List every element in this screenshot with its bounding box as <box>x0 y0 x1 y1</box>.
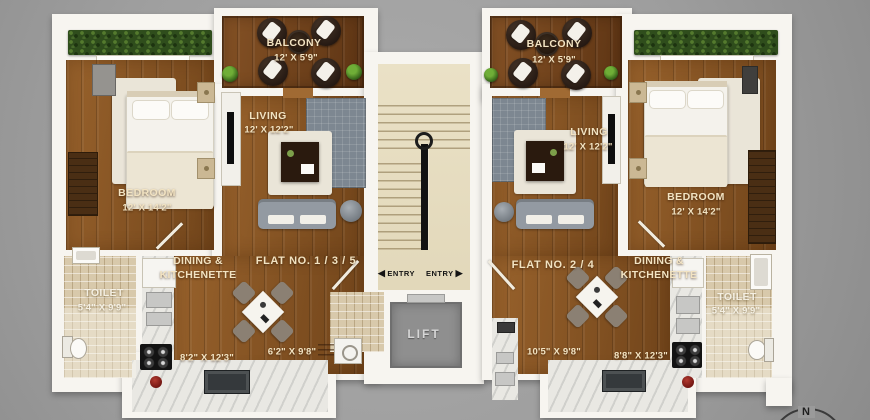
lift-label: LIFT <box>407 327 440 341</box>
entry-right: ENTRY ▶ <box>426 269 463 278</box>
right-dining-label: DINING & KITCHENETTE <box>612 255 706 282</box>
right-balcony-dims: 12' X 5'9" <box>532 55 576 66</box>
left-balcony-label: BALCONY <box>267 37 322 49</box>
left-balcony-plant <box>222 66 238 82</box>
right-stove <box>672 342 702 368</box>
left-coffee-table <box>281 142 319 182</box>
table-decor <box>260 314 269 323</box>
entry-right-label: ENTRY <box>426 269 454 278</box>
right-bedroom-label: BEDROOM <box>667 191 725 203</box>
left-balcony-plant <box>346 64 362 80</box>
table-decor <box>593 286 601 294</box>
table-decor <box>593 299 602 308</box>
left-side-table <box>340 200 362 222</box>
left-sofa <box>258 199 336 229</box>
chair-cushion <box>565 63 586 84</box>
coffee-table-decor <box>287 150 294 157</box>
right-balcony-plant <box>484 68 498 82</box>
sofa-cushion <box>300 215 326 224</box>
right-kitchen-item <box>676 318 700 334</box>
left-bedroom-wardrobe <box>68 152 98 216</box>
entry-arrow-left-icon: ◀ <box>378 269 385 278</box>
right-nightstand-top <box>629 82 647 103</box>
left-living-label: LIVING <box>249 110 286 122</box>
left-wc-bowl <box>70 338 87 359</box>
right-bed-duvet <box>645 135 727 187</box>
right-toilet-dims: 5'4" X 9'9" <box>712 306 760 317</box>
right-toilet-nub-wall <box>766 378 792 406</box>
stair-rail-hook <box>415 132 433 150</box>
left-bedroom-label: BEDROOM <box>118 187 176 199</box>
left-tv <box>227 112 234 164</box>
coffee-table-decor <box>550 149 557 156</box>
right-balcony-label: BALCONY <box>527 38 582 50</box>
left-dining-label: DINING & KITCHENETTE <box>152 255 244 282</box>
chair-cushion <box>512 61 533 82</box>
right-bedroom-wardrobe <box>748 150 776 244</box>
left-living-dims: 12' X 12'2" <box>244 125 293 136</box>
left-kitchen-item <box>146 292 172 308</box>
right-bedroom-dims: 12' X 14'2" <box>671 207 720 218</box>
chair-cushion <box>315 61 336 82</box>
right-living-dims: 12' X 12'2" <box>563 142 612 153</box>
left-toilet-dims: 5'4" X 9'9" <box>78 303 126 314</box>
right-kitchen-sink <box>602 370 646 392</box>
left-washbasin <box>72 247 100 264</box>
floor-plan: ◀ ENTRY ENTRY ▶ <box>0 0 870 420</box>
right-flat-number: FLAT NO. 2 / 4 <box>512 259 595 271</box>
sofa-cushion <box>558 215 584 224</box>
sofa-cushion <box>268 215 294 224</box>
left-red-pot <box>150 376 162 388</box>
right-bed <box>644 84 728 186</box>
right-wc-tank <box>764 338 774 362</box>
coffee-table-decor <box>532 163 545 173</box>
right-kitchen-dims: 8'8" X 12'3" <box>614 351 668 362</box>
left-toilet-label: TOILET <box>84 287 124 299</box>
right-side-table <box>494 202 514 222</box>
compass-north-label: N <box>802 406 810 418</box>
left-planter-hedge <box>68 30 212 55</box>
right-bed-pillow <box>687 90 724 109</box>
right-nightstand-bottom <box>629 158 647 179</box>
right-washbasin <box>750 254 772 290</box>
right-red-pot <box>682 376 694 388</box>
coffee-table-decor <box>301 164 314 174</box>
left-kitchen-sink <box>204 370 250 394</box>
stair-rail <box>421 144 428 250</box>
table-decor <box>259 301 267 309</box>
right-toilet-label: TOILET <box>717 291 757 303</box>
left-bedroom-dresser <box>92 64 116 96</box>
right-kitchen-item <box>676 296 700 314</box>
right-counter-faucet <box>497 322 515 333</box>
right-counter-item <box>496 352 514 364</box>
right-balcony-threshold <box>540 88 570 98</box>
right-counter-item <box>495 372 515 386</box>
left-flat-number: FLAT NO. 1 / 3 / 5 <box>256 255 356 267</box>
left-bed-pillow <box>132 100 170 120</box>
entry-left: ◀ ENTRY <box>378 269 415 278</box>
left-balcony-threshold <box>283 88 313 98</box>
right-bedroom-dark-unit <box>742 66 758 94</box>
left-kitchen-dims: 8'2" X 12'3" <box>180 353 234 364</box>
sofa-cushion <box>526 215 552 224</box>
left-kitchen-item <box>146 312 172 326</box>
right-sofa <box>516 199 594 229</box>
left-balcony-dims: 12' X 5'9" <box>274 53 318 64</box>
stair-lower-flight <box>378 156 423 252</box>
left-washing-machine <box>334 338 362 364</box>
entry-arrow-right-icon: ▶ <box>456 269 463 278</box>
left-bed-pillow <box>171 100 209 120</box>
right-planter-hedge <box>634 30 778 55</box>
left-stove <box>140 344 172 370</box>
right-balcony-plant <box>604 66 618 80</box>
right-living-area-dims: 10'5" X 9'8" <box>527 347 581 358</box>
right-bed-pillow <box>649 90 686 109</box>
left-bedroom-dims: 12' X 14'2" <box>122 203 171 214</box>
right-bed-headboard <box>645 81 727 87</box>
left-dining-dims: 6'2" X 9'8" <box>268 347 316 358</box>
entry-left-label: ENTRY <box>387 269 415 278</box>
lift-door-sill <box>407 294 445 303</box>
left-nightstand-top <box>197 82 215 103</box>
right-living-label: LIVING <box>570 126 607 138</box>
right-tv <box>608 114 615 164</box>
right-coffee-table <box>526 141 564 181</box>
left-nightstand-bottom <box>197 158 215 179</box>
